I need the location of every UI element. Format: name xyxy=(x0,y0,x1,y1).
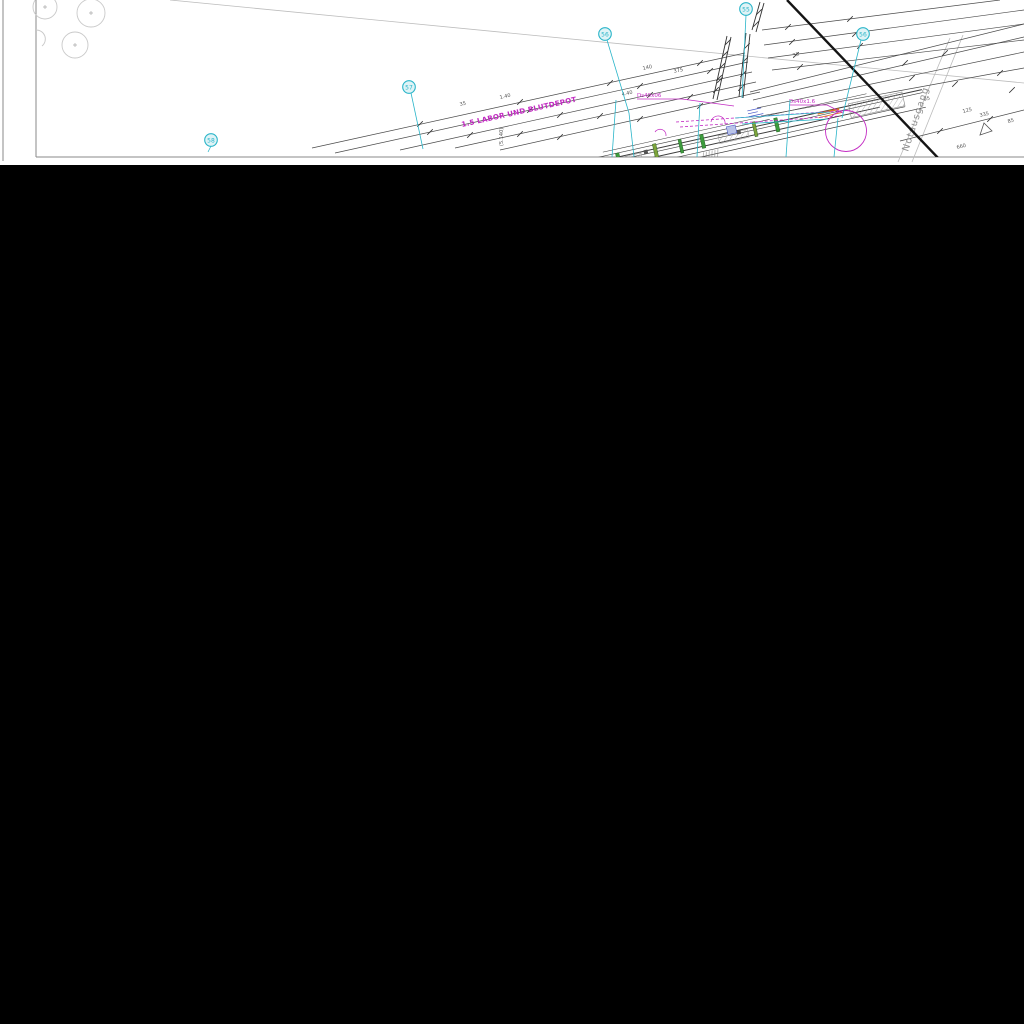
cyan-service-lines xyxy=(612,100,838,157)
floor-plan-drawing: Ds40x06 Ds40x1.6 1.5 LABOR UND BLUTDEPOT… xyxy=(0,0,1024,165)
detail-bubble-label: 58 xyxy=(207,137,215,144)
black-background-area xyxy=(0,165,1024,1024)
duct-label-large: Ds40x1.6 xyxy=(789,99,816,105)
detail-bubble-58: 58 xyxy=(205,134,218,152)
blue-hatch-box xyxy=(726,125,737,135)
sheet-frame xyxy=(3,0,1024,161)
dim-text: 85 xyxy=(1007,118,1015,125)
page-canvas: { "sheet": { "type": "architectural-floo… xyxy=(0,0,1024,1024)
dim-text: 375 xyxy=(673,67,684,75)
dim-text: 335 xyxy=(979,111,990,119)
dimension-lines-right xyxy=(750,0,1024,141)
detail-bubbles: 58 57 56 55 56 xyxy=(205,3,870,157)
dim-text: 125 xyxy=(962,107,973,115)
exit-label: Notausgang xyxy=(900,85,931,152)
dim-text: 140 xyxy=(642,64,653,72)
dim-text: (5.140) xyxy=(499,128,505,146)
dim-text: 1.40 xyxy=(499,93,511,101)
drawing-sheet: Ds40x06 Ds40x1.6 1.5 LABOR UND BLUTDEPOT… xyxy=(0,0,1024,165)
detail-bubble-label: 55 xyxy=(742,6,750,13)
magenta-detail-circle xyxy=(826,111,867,152)
tree-symbols xyxy=(33,0,105,58)
duct-label-small: Ds40x06 xyxy=(637,93,662,99)
arrow-symbol xyxy=(980,123,992,135)
detail-bubble-57: 57 xyxy=(403,81,423,149)
fixture-mark xyxy=(643,149,648,154)
dimension-tick-bundles xyxy=(713,2,764,100)
detail-bubble-55: 55 xyxy=(740,3,753,98)
detail-bubble-label: 56 xyxy=(859,31,867,38)
dim-text: 35 xyxy=(459,101,467,108)
note-blue-marks xyxy=(747,108,763,117)
magenta-annotations xyxy=(637,99,867,152)
detail-bubble-label: 57 xyxy=(405,84,413,91)
detail-bubble-label: 56 xyxy=(601,31,609,38)
fixture-mark xyxy=(736,130,741,135)
boundary-lines xyxy=(170,0,1024,162)
dim-text: 660 xyxy=(956,143,967,151)
